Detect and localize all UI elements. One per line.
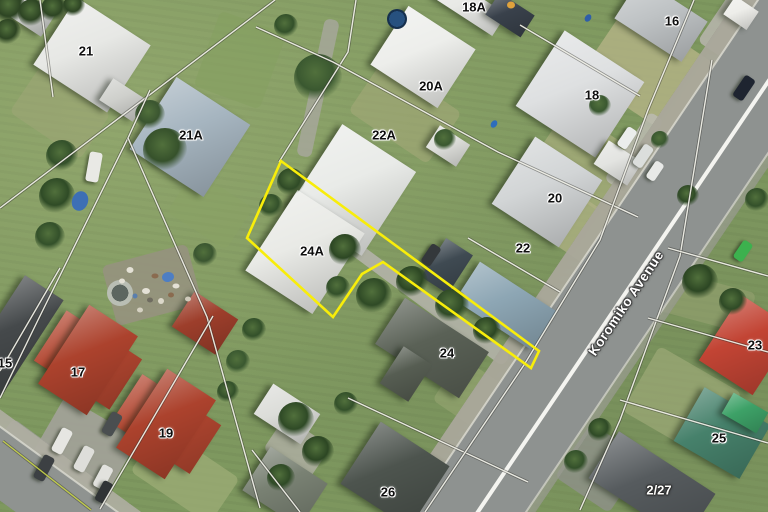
parcel-number-label: 16 [665,14,679,29]
parcel-number-label: 22A [372,128,396,143]
parcel-number-label: 19 [159,426,173,441]
parcel-number-label: 18A [462,0,486,15]
parcel-number-label: 24A [300,244,324,259]
parcel-number-label: 23 [748,338,762,353]
parcel-number-label: 21A [179,128,203,143]
parcel-number-label: 18 [585,88,599,103]
parcel-number-label: 26 [381,485,395,500]
label-layer: Koromiko Avenue 2121A18A20A22A1618202224… [0,0,768,512]
parcel-number-label: 22 [516,241,530,256]
parcel-number-label: 21 [79,44,93,59]
parcel-number-label: 15 [0,356,12,371]
aerial-map[interactable]: Koromiko Avenue 2121A18A20A22A1618202224… [0,0,768,512]
parcel-number-label: 17 [71,365,85,380]
street-name-label: Koromiko Avenue [585,248,667,359]
parcel-number-label: 24 [440,346,454,361]
parcel-number-label: 25 [712,431,726,446]
parcel-number-label: 2/27 [646,483,671,498]
parcel-number-label: 20 [548,191,562,206]
parcel-number-label: 20A [419,79,443,94]
